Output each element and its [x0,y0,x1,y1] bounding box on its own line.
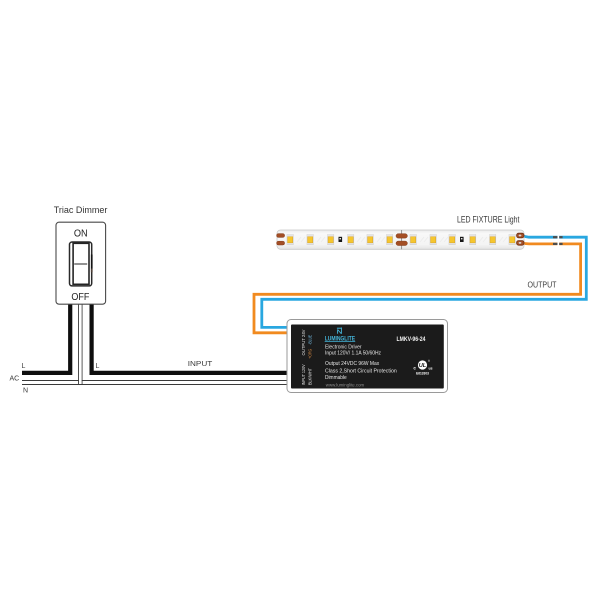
svg-text:L: L [22,363,26,370]
svg-text:UL: UL [419,363,427,369]
svg-text:INPUT 120V: INPUT 120V [301,364,306,386]
svg-text:+ORG: +ORG [307,348,312,358]
svg-text:BLK/WHT: BLK/WHT [307,368,312,385]
svg-text:Electronic Driver: Electronic Driver [325,344,362,350]
svg-text:E613303: E613303 [416,372,429,376]
svg-text:www.luminglite.com: www.luminglite.com [326,383,365,388]
svg-text:LMKV-96-24: LMKV-96-24 [397,337,427,343]
svg-text:Dimmable: Dimmable [325,375,347,381]
svg-text:LED FIXTURE Light: LED FIXTURE Light [457,215,520,225]
svg-text:Triac Dimmer: Triac Dimmer [54,205,108,215]
svg-text:c: c [413,366,416,371]
svg-text:ON: ON [74,229,88,240]
svg-text:-BLUE: -BLUE [307,335,312,345]
svg-text:®: ® [428,359,430,363]
svg-text:OUTPUT 24V: OUTPUT 24V [301,329,306,356]
svg-text:us: us [429,367,433,371]
svg-text:OFF: OFF [71,292,89,303]
svg-text:Input 120V/ 1.1A 50/60Hz: Input 120V/ 1.1A 50/60Hz [325,351,381,357]
svg-text:N: N [23,388,28,395]
svg-text:Class 2,Short Circuit Protecti: Class 2,Short Circuit Protection [325,368,397,374]
svg-text:OUTPUT: OUTPUT [528,280,557,289]
svg-text:AC: AC [10,376,20,383]
svg-text:INPUT: INPUT [188,359,213,368]
svg-text:Output 24VDC 96W Max: Output 24VDC 96W Max [325,361,379,367]
svg-text:L: L [96,363,100,370]
